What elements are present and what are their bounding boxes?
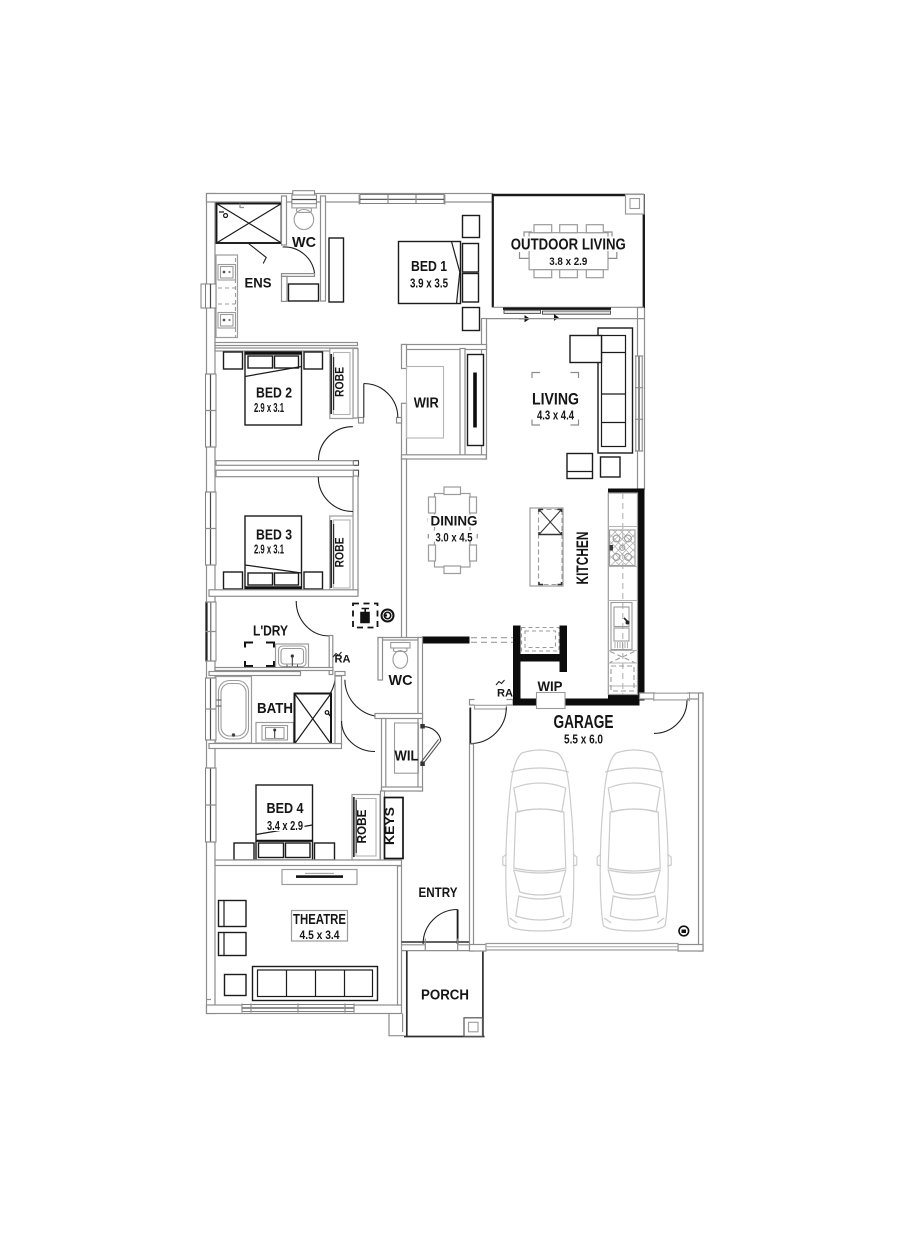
svg-text:BED 3: BED 3 [256, 527, 292, 544]
svg-text:THEATRE: THEATRE [293, 912, 346, 928]
svg-text:WC: WC [292, 234, 316, 251]
svg-text:2.9 x 3.1: 2.9 x 3.1 [254, 543, 284, 557]
svg-text:3.8 x 2.9: 3.8 x 2.9 [549, 256, 587, 268]
svg-text:RA: RA [497, 688, 513, 700]
svg-text:BED 4: BED 4 [267, 800, 305, 817]
svg-text:RA: RA [335, 654, 351, 666]
svg-text:BED 2: BED 2 [256, 384, 292, 401]
svg-text:KEYS: KEYS [382, 807, 397, 845]
svg-text:DINING: DINING [431, 514, 478, 529]
svg-text:GARAGE: GARAGE [554, 712, 614, 732]
svg-text:BATH: BATH [257, 700, 293, 717]
svg-text:ENS: ENS [245, 275, 272, 291]
svg-text:ROBE: ROBE [355, 810, 369, 844]
svg-text:BED 1: BED 1 [411, 258, 447, 275]
svg-text:WIP: WIP [538, 678, 563, 694]
svg-text:ROBE: ROBE [333, 538, 347, 568]
svg-text:2.9 x 3.1: 2.9 x 3.1 [254, 401, 284, 415]
svg-text:5.5 x 6.0: 5.5 x 6.0 [564, 733, 603, 747]
svg-text:3.9 x 3.5: 3.9 x 3.5 [410, 276, 448, 290]
svg-text:WC: WC [389, 672, 413, 689]
svg-text:4.5 x 3.4: 4.5 x 3.4 [300, 928, 340, 942]
svg-text:LIVING: LIVING [532, 390, 579, 409]
svg-text:KITCHEN: KITCHEN [573, 532, 592, 585]
svg-text:L'DRY: L'DRY [253, 623, 288, 640]
svg-text:3.4 x 2.9: 3.4 x 2.9 [267, 819, 303, 833]
svg-text:WIR: WIR [414, 395, 439, 412]
svg-text:OUTDOOR LIVING: OUTDOOR LIVING [511, 236, 626, 253]
svg-text:ENTRY: ENTRY [419, 884, 459, 900]
svg-text:3.0 x 4.5: 3.0 x 4.5 [436, 531, 473, 545]
svg-text:4.3 x 4.4: 4.3 x 4.4 [537, 409, 574, 423]
svg-text:WIL: WIL [395, 748, 419, 765]
svg-text:ROBE: ROBE [333, 367, 347, 397]
svg-text:PORCH: PORCH [421, 987, 469, 1003]
